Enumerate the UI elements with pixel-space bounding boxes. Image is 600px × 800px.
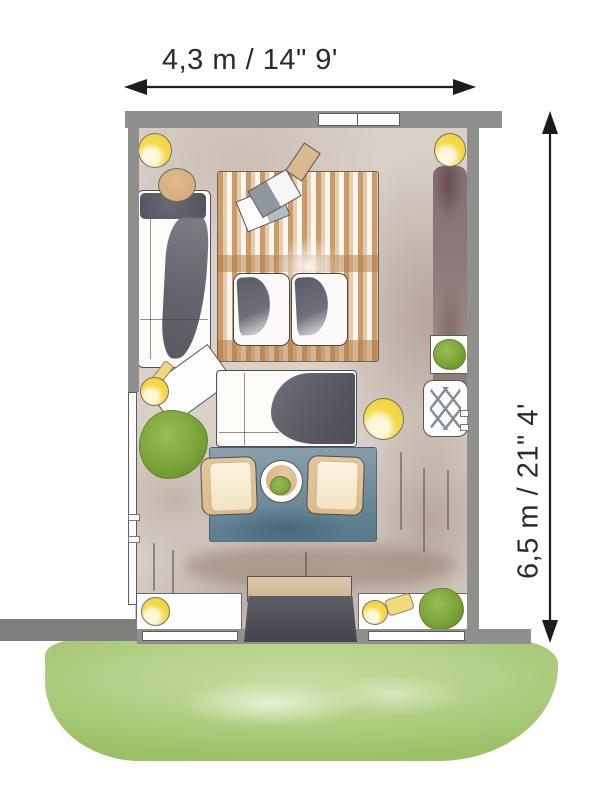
floorboard-line [423,468,425,552]
window-latch [128,536,140,543]
lattice-pattern [430,387,461,430]
window-latch [460,424,469,431]
doormat [244,596,357,642]
floorboard-line [400,452,402,530]
wall-right [467,111,479,632]
width-dimension-label: 4,3 m / 14" 9' [120,44,380,77]
armchair-right [306,455,365,516]
round-side-table [158,168,196,202]
sofa-seam [244,373,245,445]
wall-top [125,111,502,128]
shrub-bottom-right [419,588,464,630]
wall-left [128,111,139,392]
sofa-seam [150,217,151,359]
window-mullion [357,113,358,126]
window-latch [460,410,469,417]
potted-plant [433,339,466,370]
floorboard-line [447,470,449,530]
exterior-wall-left [0,619,137,641]
armchair-left [200,456,258,516]
lounge-chair-left [233,273,290,346]
sectional-sofa [137,190,211,368]
window-top [318,113,400,126]
table-lamp-bottom-left [141,597,170,626]
window-latch [128,514,140,521]
sofa-seam [140,319,208,320]
height-dimension-label: 6,5 m / 21" 4' [513,403,546,579]
window-left [128,392,137,605]
width-arrow [124,79,476,95]
center-sofa [216,370,357,447]
sofa-chaise-shading [271,373,355,444]
window-bottom-left [142,631,238,641]
floorplan-illustration: 4,3 m / 14" 9' 6,5 m / 21" 4' [0,0,600,800]
lawn [45,640,558,761]
armchair-seat [209,461,253,511]
floor-lamp [363,398,404,440]
window-bottom-right [368,631,465,641]
round-coffee-table [260,460,303,503]
sofa-throw-shading [160,216,209,360]
floorboard-line [153,543,155,591]
ceiling-lamp-top-right [434,133,466,167]
sofa-seam [219,432,279,433]
armchair-seat [315,460,359,510]
lounge-chair-right [291,273,348,346]
chair-shading [295,276,330,336]
chair-shading [237,276,272,336]
desk-lamp [140,377,169,406]
ceiling-lamp-top-left [138,133,172,168]
